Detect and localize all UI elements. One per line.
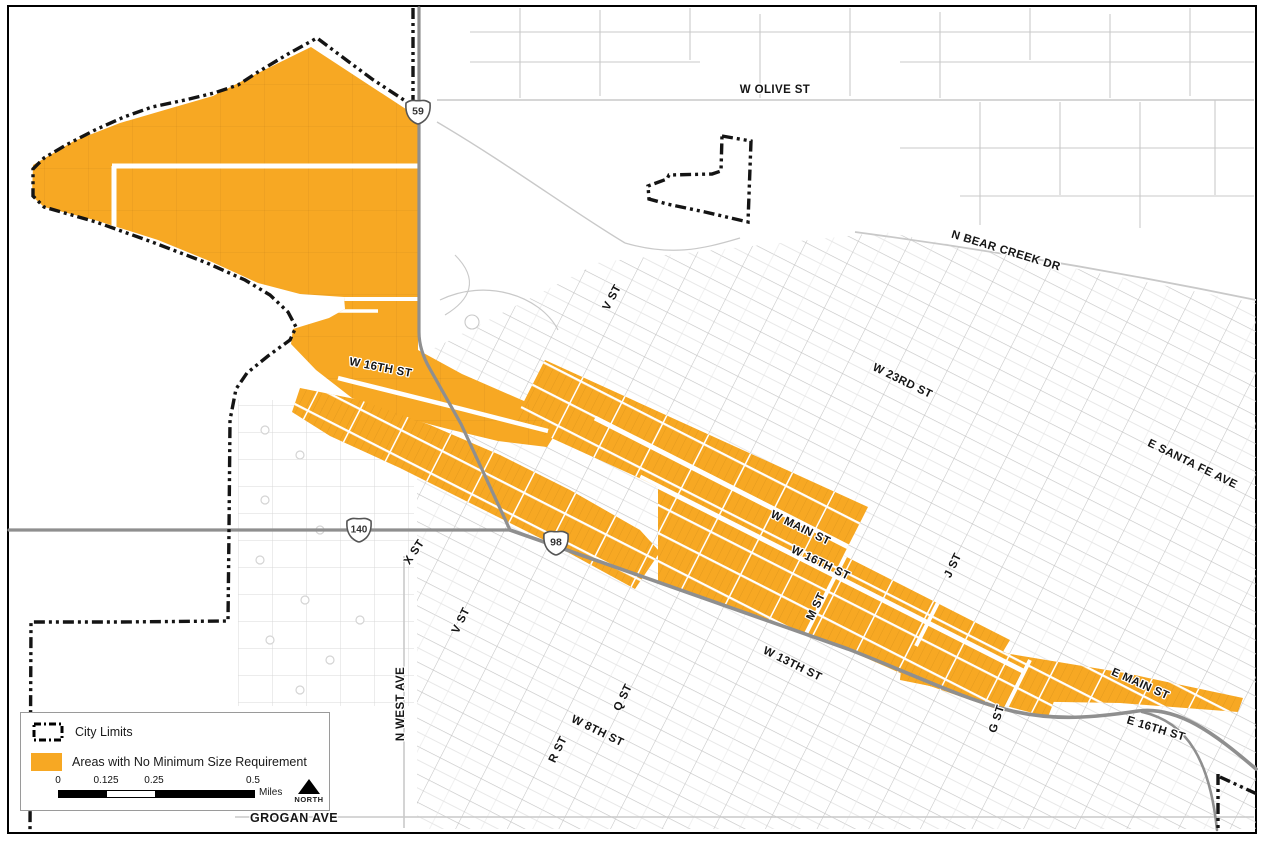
orange-area-symbol [31, 753, 62, 771]
scale-bar: 0 0.125 0.25 0.5 Miles NORTH [21, 773, 331, 811]
svg-text:140: 140 [351, 525, 368, 536]
svg-text:59: 59 [412, 106, 424, 118]
scale-tick-2: 0.25 [144, 775, 163, 786]
street-label-n-west-ave: N WEST AVE [395, 667, 407, 741]
scale-bar-graphic [58, 790, 255, 798]
legend-label-orange-area: Areas with No Minimum Size Requirement [72, 755, 307, 769]
zoning-map: W OLIVE ST N BEAR CREEK DR V ST W 23RD S… [0, 0, 1265, 848]
scale-unit-label: Miles [259, 787, 282, 798]
north-arrow-icon [298, 779, 320, 794]
scale-tick-0: 0 [55, 775, 61, 786]
legend-item-city-limits: City Limits [31, 721, 329, 743]
svg-text:98: 98 [550, 537, 562, 549]
scale-tick-1: 0.125 [93, 775, 118, 786]
street-label-grogan-ave: GROGAN AVE [250, 811, 338, 825]
street-label-w-olive-st: W OLIVE ST [740, 84, 810, 96]
scale-tick-3: 0.5 [246, 775, 260, 786]
legend: City Limits Areas with No Minimum Size R… [20, 712, 330, 811]
city-limits-symbol [31, 721, 65, 743]
legend-item-orange-area: Areas with No Minimum Size Requirement [31, 751, 329, 773]
legend-label-city-limits: City Limits [75, 725, 133, 739]
north-arrow-label: NORTH [289, 795, 329, 804]
north-arrow: NORTH [289, 779, 329, 804]
